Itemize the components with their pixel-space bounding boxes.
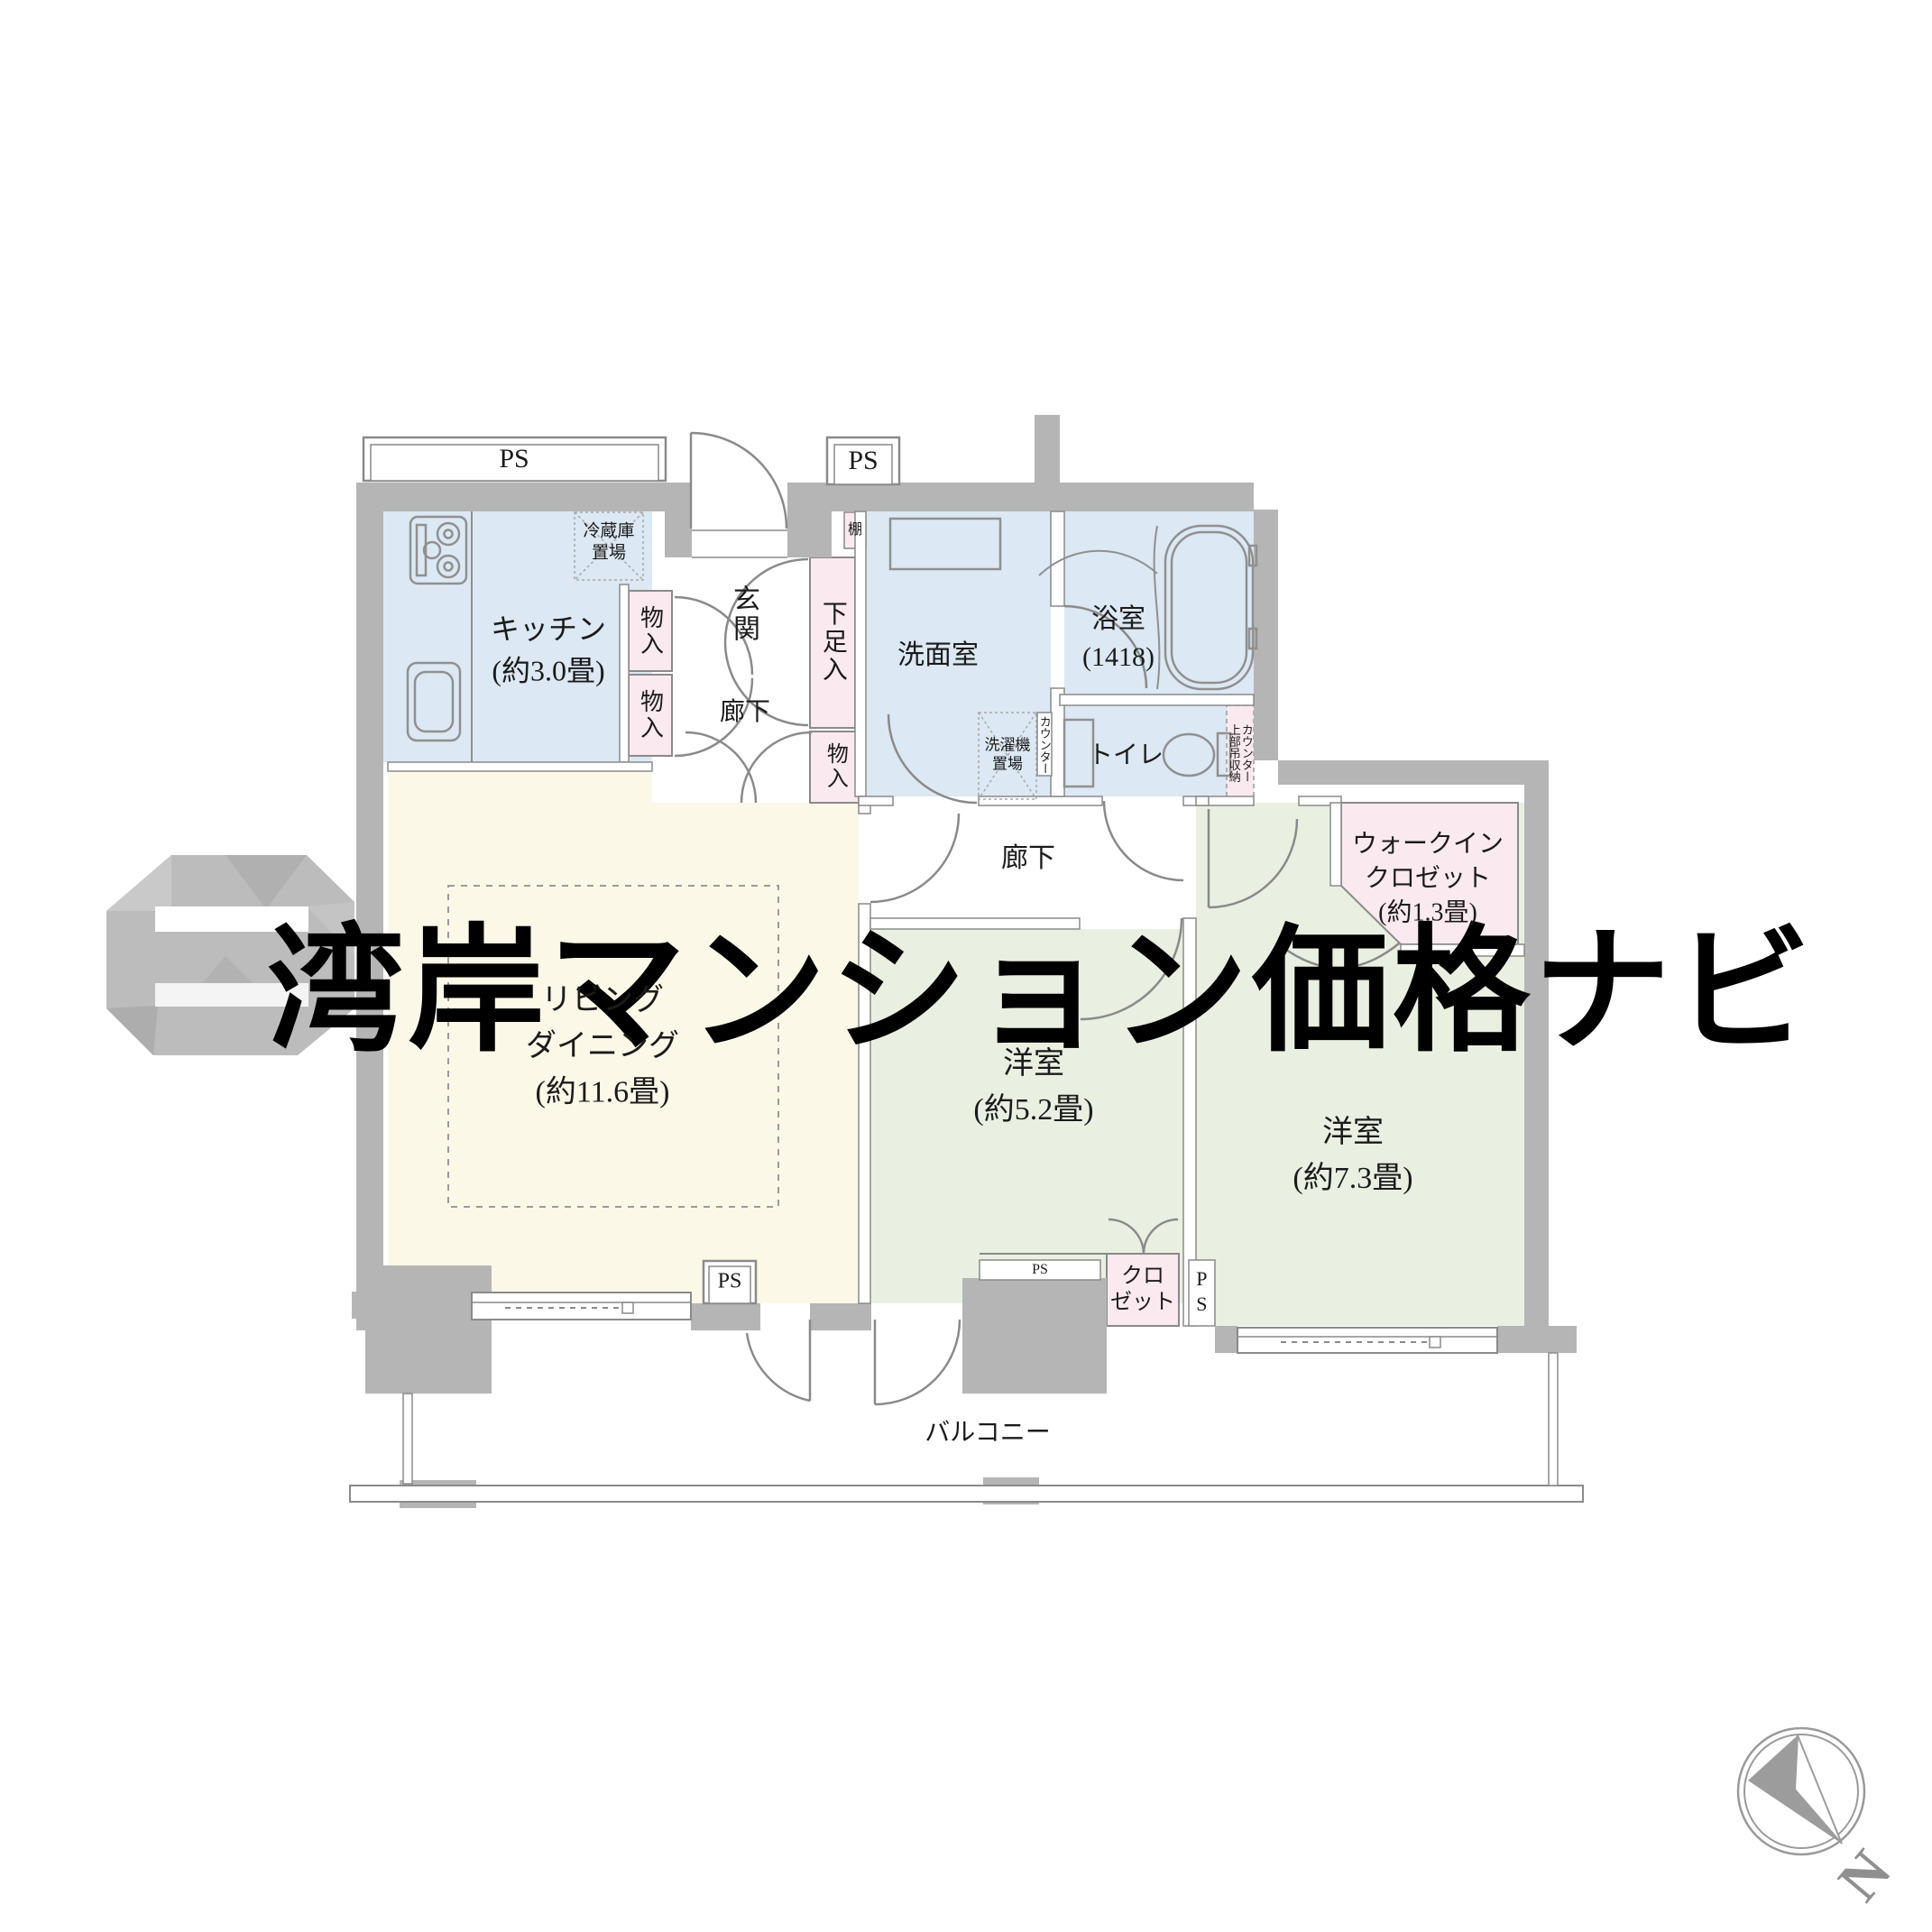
- wall-kitchen-hall: [620, 584, 629, 762]
- wall-bath-toilet: [1060, 695, 1254, 705]
- ps-bedroom1-v-label: PS: [1188, 1267, 1215, 1318]
- wall-bottom-right: [1497, 1326, 1577, 1353]
- entrance-jamb-right: [787, 511, 832, 557]
- walkin-closet-label: ウォークイン クロゼット (約1.3畳): [1352, 827, 1504, 929]
- compass-icon: [1738, 1728, 1864, 1854]
- monoire1-label: 物入: [634, 605, 666, 658]
- bedroom2-label: 洋室 (約7.3畳): [1293, 1109, 1412, 1201]
- bath-label: 浴室 (1418): [1082, 601, 1155, 676]
- washroom-label: 洗面室: [897, 637, 979, 675]
- ps-top-left-label: PS: [499, 440, 529, 478]
- counter-toilet-label: カウンター: [1238, 724, 1255, 783]
- corridor2-label: 廊下: [1001, 840, 1055, 878]
- wall-bottom-b: [691, 1303, 760, 1330]
- shoe-box-label: 下足入: [815, 601, 850, 685]
- wall-kitchen-living: [388, 762, 652, 771]
- wall-top-right: [787, 483, 1254, 511]
- entrance-door: [691, 433, 787, 529]
- kitchen-label: キッチン (約3.0畳): [491, 609, 606, 693]
- balcony-label: バルコニー: [925, 1416, 1050, 1450]
- wall-bottom-c: [810, 1303, 871, 1330]
- wall-corridor-top-a: [859, 796, 893, 805]
- pillar-bottom-center: [962, 1278, 1107, 1394]
- floorplan-canvas: 湾岸マンション価格ナビ PS PS キッチン (約3.0畳) 冷蔵庫 置場 物入…: [0, 0, 1932, 1932]
- wall-hall-washroom: [855, 511, 866, 796]
- fridge-space-label: 冷蔵庫 置場: [583, 520, 634, 564]
- wall-top-spur: [1035, 415, 1060, 511]
- wall-wic-top: [1278, 760, 1549, 785]
- bedroom1-label: 洋室 (約5.2畳): [973, 1041, 1093, 1133]
- ps-living-label: PS: [718, 1269, 742, 1295]
- toilet-label: トイレ: [1088, 739, 1164, 773]
- pillar-notch: [352, 1292, 365, 1319]
- pillar-bottom-left: [365, 1265, 492, 1394]
- washer-space-label: 洗濯機 置場: [985, 736, 1031, 773]
- balcony-door-bedroom1: [875, 1320, 960, 1404]
- hall-door-right: [741, 732, 812, 803]
- wall-top-left: [356, 483, 692, 511]
- ps-top-center-label: PS: [848, 442, 878, 480]
- wall-corridor-top-c: [1183, 796, 1254, 805]
- monoire3-label: 物入: [822, 742, 848, 791]
- corridor1-label: 廊下: [720, 695, 770, 730]
- wall-wic-left: [1330, 803, 1341, 886]
- ps-bedroom1-h-label: PS: [1032, 1260, 1048, 1280]
- monoire2-label: 物入: [634, 689, 666, 741]
- wall-bottom-d: [1215, 1326, 1237, 1353]
- closet-label: クロ ゼット: [1110, 1264, 1175, 1316]
- toilet-door: [1104, 801, 1183, 880]
- wall-bedroom2-top-a: [1196, 796, 1209, 805]
- balcony-door-living: [747, 1320, 810, 1401]
- shelf-label: 棚: [848, 520, 862, 540]
- wall-corridor-top-b: [979, 796, 1102, 805]
- entrance-step-lines: [692, 530, 787, 557]
- counter-washroom-label: カウンター: [1036, 716, 1053, 775]
- living-dining-label: リビング ダイニング (約11.6畳): [526, 978, 679, 1116]
- entrance-jamb-left: [665, 511, 692, 557]
- hall-door-left: [685, 732, 756, 803]
- entrance-label: 玄関: [724, 584, 762, 644]
